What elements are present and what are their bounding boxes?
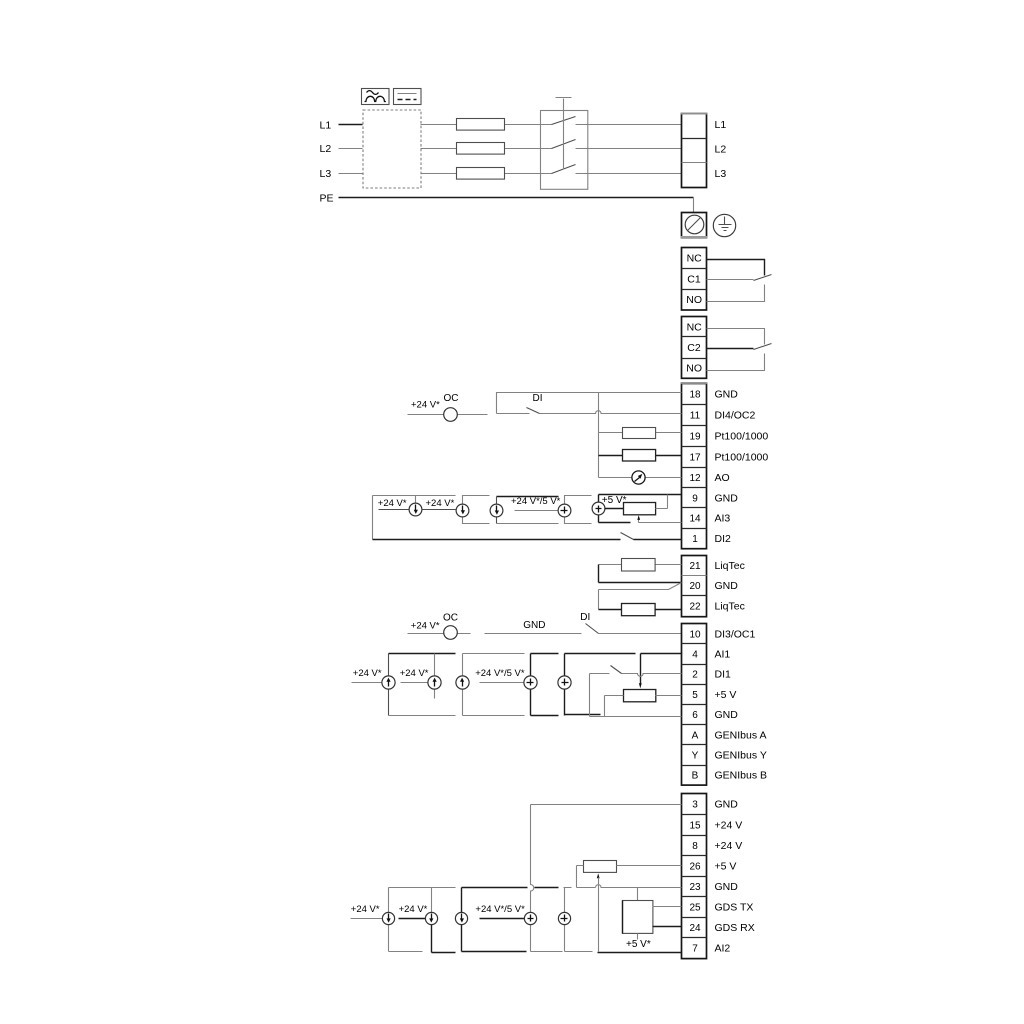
svg-text:L3: L3 (715, 168, 727, 180)
svg-text:GND: GND (715, 709, 739, 721)
svg-text:+24 V*: +24 V* (399, 904, 428, 915)
svg-text:+24 V*: +24 V* (353, 668, 382, 679)
svg-text:+24 V: +24 V (715, 819, 743, 831)
svg-text:NC: NC (687, 252, 703, 264)
svg-text:B: B (692, 771, 699, 782)
svg-text:AO: AO (715, 472, 730, 484)
svg-text:Y: Y (692, 751, 699, 762)
svg-text:GND: GND (715, 389, 739, 401)
svg-text:Pt100/1000: Pt100/1000 (715, 431, 769, 443)
svg-text:+24 V*: +24 V* (411, 620, 440, 631)
svg-text:DI2: DI2 (715, 533, 732, 545)
svg-text:25: 25 (689, 902, 701, 913)
svg-text:4: 4 (692, 650, 698, 661)
svg-text:1: 1 (692, 534, 698, 545)
svg-text:DI1: DI1 (715, 669, 732, 681)
svg-text:10: 10 (689, 629, 701, 640)
svg-text:NC: NC (687, 321, 703, 333)
svg-text:6: 6 (692, 710, 698, 721)
svg-text:GND: GND (715, 799, 739, 811)
svg-text:18: 18 (689, 390, 701, 401)
svg-text:23: 23 (689, 882, 701, 893)
svg-text:7: 7 (692, 943, 698, 954)
svg-text:22: 22 (689, 602, 701, 613)
svg-text:17: 17 (689, 453, 701, 464)
svg-text:12: 12 (689, 473, 701, 484)
svg-text:11: 11 (690, 411, 701, 422)
svg-text:A: A (692, 730, 699, 741)
svg-text:+24 V*: +24 V* (351, 904, 380, 915)
svg-text:OC: OC (443, 612, 458, 623)
svg-text:GND: GND (523, 620, 545, 631)
svg-text:24: 24 (689, 923, 701, 934)
svg-text:LiqTec: LiqTec (715, 560, 745, 572)
svg-text:GENIbus B: GENIbus B (715, 770, 768, 782)
svg-text:+24 V*/5 V*: +24 V*/5 V* (475, 668, 525, 679)
svg-text:21: 21 (689, 561, 701, 572)
svg-text:DI4/OC2: DI4/OC2 (715, 410, 756, 422)
svg-text:3: 3 (692, 800, 698, 811)
svg-text:8: 8 (692, 841, 698, 852)
svg-text:+24 V*: +24 V* (378, 498, 407, 509)
svg-text:+24 V*: +24 V* (426, 498, 455, 509)
svg-text:+5 V*: +5 V* (626, 939, 651, 950)
svg-text:+24 V: +24 V (715, 840, 743, 852)
svg-text:+24 V*: +24 V* (400, 668, 429, 679)
svg-text:DI: DI (580, 612, 590, 623)
svg-text:GENIbus Y: GENIbus Y (715, 750, 767, 762)
svg-text:GND: GND (715, 580, 739, 592)
svg-text:26: 26 (689, 861, 701, 872)
svg-text:L2: L2 (715, 143, 727, 155)
svg-text:GDS TX: GDS TX (715, 901, 754, 913)
svg-text:GND: GND (715, 881, 739, 893)
svg-text:PE: PE (320, 192, 334, 204)
svg-text:20: 20 (689, 581, 701, 592)
svg-text:5: 5 (692, 690, 698, 701)
svg-text:NO: NO (686, 294, 702, 306)
svg-text:OC: OC (444, 393, 459, 404)
svg-text:NO: NO (686, 363, 702, 375)
svg-text:LiqTec: LiqTec (715, 601, 745, 613)
svg-text:+5 V: +5 V (715, 689, 737, 701)
svg-text:+24 V*: +24 V* (411, 400, 440, 411)
svg-text:L1: L1 (320, 119, 332, 131)
svg-text:AI3: AI3 (715, 513, 731, 525)
svg-text:+24 V*/5 V*: +24 V*/5 V* (511, 496, 561, 507)
svg-text:C2: C2 (687, 342, 701, 354)
svg-text:DI3/OC1: DI3/OC1 (715, 628, 756, 640)
svg-text:14: 14 (689, 514, 701, 525)
svg-text:GND: GND (715, 492, 739, 504)
svg-text:C1: C1 (687, 273, 701, 285)
svg-text:19: 19 (689, 432, 701, 443)
svg-text:+24 V*/5 V*: +24 V*/5 V* (475, 904, 525, 915)
svg-text:15: 15 (689, 820, 701, 831)
svg-text:GDS RX: GDS RX (715, 922, 755, 934)
svg-text:DI: DI (533, 393, 543, 404)
svg-text:GENIbus A: GENIbus A (715, 729, 767, 741)
svg-text:L3: L3 (320, 168, 332, 180)
svg-text:L2: L2 (320, 143, 332, 155)
svg-text:L1: L1 (715, 119, 727, 131)
svg-text:+5 V: +5 V (715, 860, 737, 872)
svg-text:AI1: AI1 (715, 649, 731, 661)
svg-text:2: 2 (692, 670, 698, 681)
svg-text:9: 9 (692, 493, 698, 504)
svg-text:AI2: AI2 (715, 942, 731, 954)
svg-text:Pt100/1000: Pt100/1000 (715, 452, 769, 464)
